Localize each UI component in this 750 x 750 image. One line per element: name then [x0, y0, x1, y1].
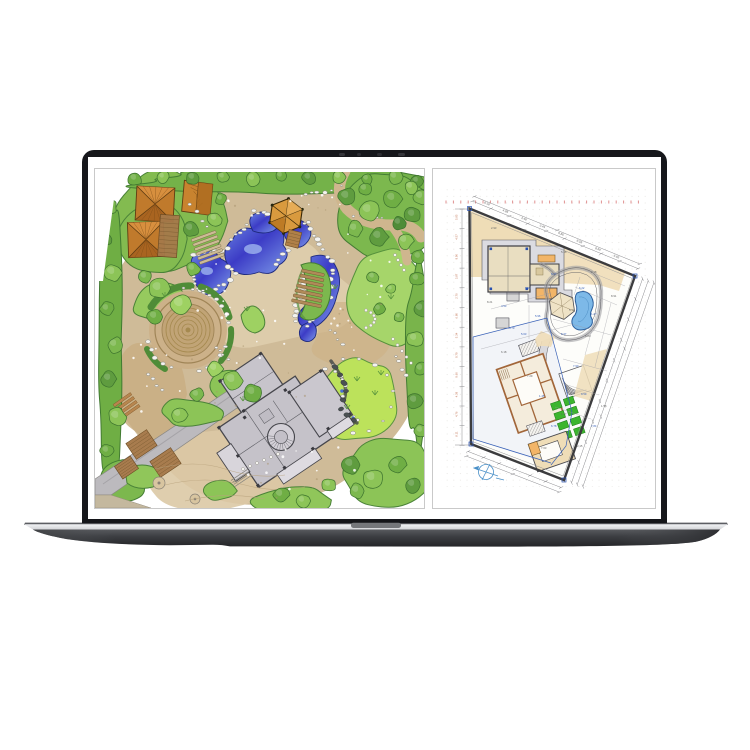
- svg-text:2.70: 2.70: [455, 293, 459, 299]
- svg-text:4.91: 4.91: [521, 228, 527, 232]
- svg-text:2.93: 2.93: [491, 226, 497, 230]
- svg-text:4.57: 4.57: [455, 234, 459, 240]
- svg-text:5.74: 5.74: [569, 308, 575, 312]
- svg-text:2.18: 2.18: [591, 270, 597, 274]
- svg-text:9.60: 9.60: [455, 372, 459, 378]
- svg-text:6.79: 6.79: [509, 326, 515, 330]
- svg-text:8.27: 8.27: [551, 272, 557, 276]
- svg-text:8.11: 8.11: [455, 431, 459, 437]
- svg-text:1.58: 1.58: [601, 404, 607, 408]
- svg-text:4.53: 4.53: [501, 304, 507, 308]
- svg-text:7.63: 7.63: [541, 446, 547, 450]
- svg-text:7.84: 7.84: [591, 424, 597, 428]
- svg-text:5.85: 5.85: [455, 214, 459, 220]
- svg-text:5.46: 5.46: [561, 250, 567, 254]
- svg-text:1.47: 1.47: [561, 412, 567, 416]
- svg-text:2.15: 2.15: [577, 444, 583, 448]
- svg-text:6.80: 6.80: [455, 313, 459, 319]
- svg-text:6.78: 6.78: [551, 424, 557, 428]
- svg-text:1.27: 1.27: [591, 312, 597, 316]
- svg-text:8.91: 8.91: [611, 294, 617, 298]
- svg-text:7.90: 7.90: [573, 364, 579, 368]
- svg-text:5.63: 5.63: [521, 332, 527, 336]
- svg-text:5.34: 5.34: [455, 332, 459, 338]
- svg-text:7.29: 7.29: [527, 374, 533, 378]
- svg-text:4.76: 4.76: [455, 411, 459, 417]
- svg-text:6.80: 6.80: [585, 334, 591, 338]
- svg-text:6.22: 6.22: [579, 286, 585, 290]
- svg-text:3.87: 3.87: [455, 273, 459, 279]
- svg-text:8.37: 8.37: [561, 332, 567, 336]
- svg-text:9.59: 9.59: [581, 392, 587, 396]
- svg-text:3.99: 3.99: [525, 286, 531, 290]
- svg-text:1.45: 1.45: [539, 394, 545, 398]
- svg-text:6.18: 6.18: [501, 350, 507, 354]
- svg-text:9.90: 9.90: [455, 254, 459, 260]
- svg-text:5.96: 5.96: [535, 314, 541, 318]
- svg-text:9.79: 9.79: [455, 352, 459, 358]
- svg-text:4.39: 4.39: [455, 391, 459, 397]
- svg-text:8.21: 8.21: [487, 300, 493, 304]
